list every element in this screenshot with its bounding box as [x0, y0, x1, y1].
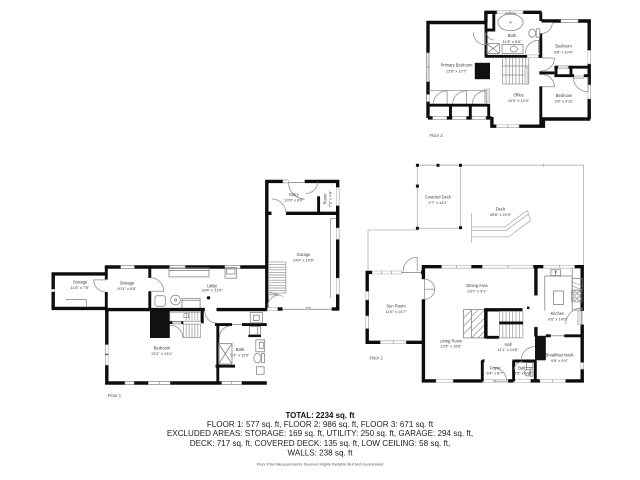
svg-text:Bath: Bath: [518, 365, 527, 370]
svg-text:14'9" x 19'6": 14'9" x 19'6": [293, 258, 315, 263]
svg-text:FLOOR 1: 577 sq. ft, FLOOR 2:: FLOOR 1: 577 sq. ft, FLOOR 2: 986 sq. ft…: [207, 420, 434, 429]
svg-text:Office: Office: [513, 92, 524, 97]
svg-text:Covered Deck: Covered Deck: [425, 194, 452, 199]
svg-text:11'1" x 14'6": 11'1" x 14'6": [497, 347, 519, 352]
svg-text:9'8" x 14'5": 9'8" x 14'5": [548, 316, 568, 321]
svg-text:DECK: 717 sq. ft, COVERED DECK: DECK: 717 sq. ft, COVERED DECK: 135 sq. …: [190, 439, 450, 448]
svg-text:9'8" x 10'4": 9'8" x 10'4": [554, 49, 574, 54]
svg-text:WALLS: 238 sq. ft: WALLS: 238 sq. ft: [288, 448, 354, 457]
svg-text:11'6" x 14'7": 11'6" x 14'7": [385, 309, 407, 314]
svg-text:8'11" x 8'8": 8'11" x 8'8": [118, 286, 138, 291]
svg-text:Floor 3: Floor 3: [430, 133, 444, 138]
svg-text:9'7" x 14'2": 9'7" x 14'2": [428, 200, 448, 205]
svg-text:9'8" x 9'4": 9'8" x 9'4": [551, 358, 569, 363]
svg-text:Storage: Storage: [120, 280, 135, 285]
svg-text:Hall: Hall: [504, 342, 511, 347]
svg-text:Kitchen: Kitchen: [551, 311, 565, 316]
svg-text:12'6" x 17'7": 12'6" x 17'7": [446, 69, 468, 74]
svg-text:24'4" x 11'9": 24'4" x 11'9": [201, 288, 223, 293]
svg-text:Deck: Deck: [496, 207, 506, 212]
svg-text:Foyer: Foyer: [490, 365, 501, 370]
svg-text:Bedroom: Bedroom: [555, 44, 572, 49]
svg-text:Floor 1: Floor 1: [108, 393, 122, 398]
svg-text:Storage: Storage: [73, 279, 88, 284]
svg-text:Bedroom: Bedroom: [154, 346, 171, 351]
svg-text:Floor Plan Measurements Deemed: Floor Plan Measurements Deemed Highly Re…: [257, 462, 384, 467]
svg-text:Floor 2: Floor 2: [370, 356, 384, 361]
svg-text:Garage: Garage: [297, 252, 311, 257]
svg-text:13'5" x 15'6": 13'5" x 15'6": [440, 344, 462, 349]
svg-text:49'8" x 21'9": 49'8" x 21'9": [490, 212, 512, 217]
svg-text:7'9" x 4'8": 7'9" x 4'8": [328, 190, 333, 208]
svg-text:Entry: Entry: [289, 192, 300, 197]
svg-text:Living Room: Living Room: [440, 338, 463, 343]
svg-text:Breakfast Nook: Breakfast Nook: [546, 352, 575, 357]
svg-text:23'7" x 9'1": 23'7" x 9'1": [467, 288, 487, 293]
svg-text:Bath: Bath: [236, 347, 245, 352]
svg-text:Bedroom: Bedroom: [556, 93, 573, 98]
svg-text:10'9" x 6'6": 10'9" x 6'6": [284, 197, 304, 202]
svg-text:TOTAL: 2234 sq. ft: TOTAL: 2234 sq. ft: [286, 411, 355, 420]
svg-text:5'1" x 12'0": 5'1" x 12'0": [230, 352, 250, 357]
svg-text:10'5" x 12'4": 10'5" x 12'4": [508, 98, 530, 103]
svg-text:Dining Area: Dining Area: [466, 283, 488, 288]
svg-text:11'8" x 8'6": 11'8" x 8'6": [503, 39, 523, 44]
svg-text:6'4" x 8'7": 6'4" x 8'7": [486, 371, 504, 376]
svg-text:Bath: Bath: [508, 33, 517, 38]
svg-text:11'6" x 7'5": 11'6" x 7'5": [71, 285, 91, 290]
svg-text:Primary Bedroom: Primary Bedroom: [441, 62, 473, 67]
svg-text:Sun Room: Sun Room: [386, 303, 406, 308]
svg-text:EXCLUDED AREAS: STORAGE: 169 s: EXCLUDED AREAS: STORAGE: 169 sq. ft, UTI…: [167, 429, 473, 438]
svg-text:23'1" x 13'1": 23'1" x 13'1": [151, 351, 173, 356]
svg-text:4'5" x 4'8": 4'5" x 4'8": [514, 371, 532, 376]
svg-text:9'8" x 9'11": 9'8" x 9'11": [555, 98, 575, 103]
